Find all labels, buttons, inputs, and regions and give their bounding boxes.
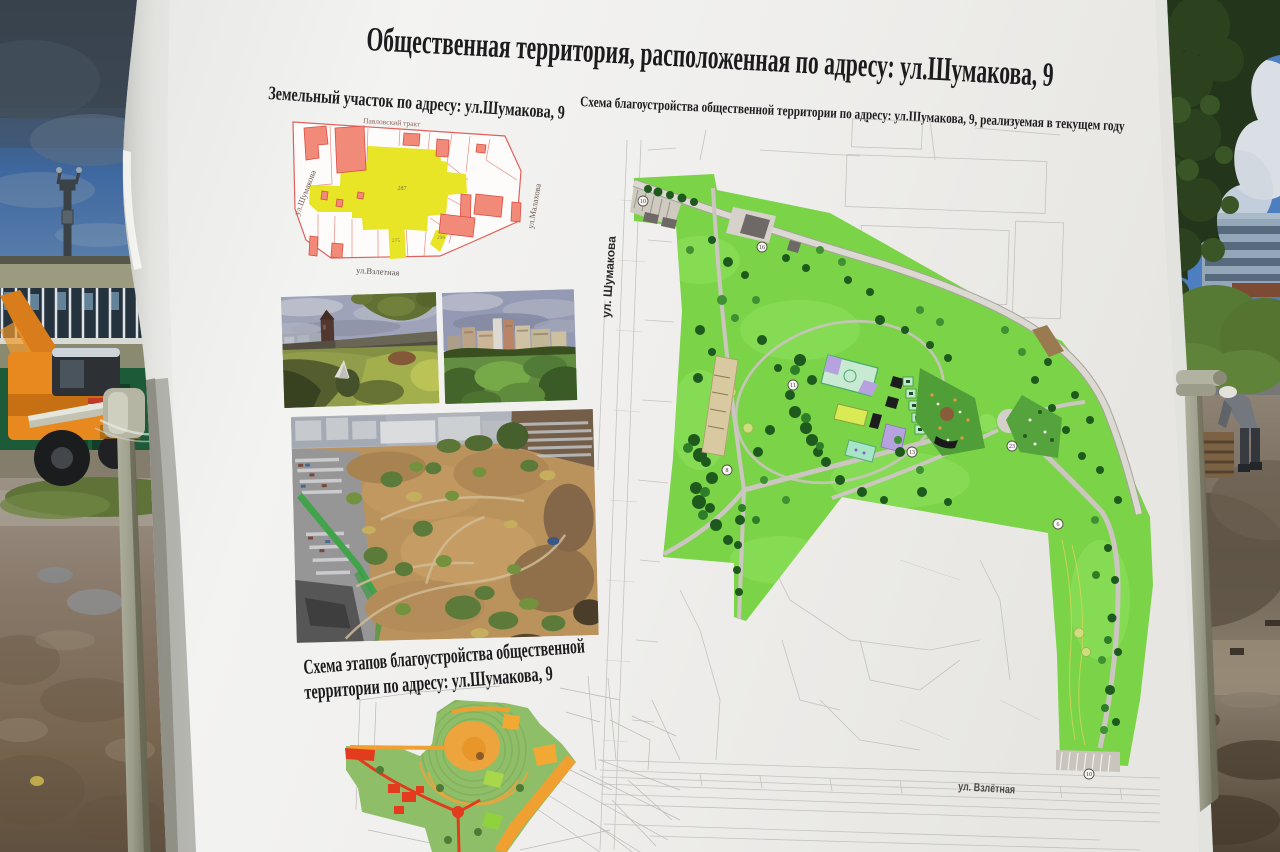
svg-text:296: 296	[437, 235, 446, 241]
svg-text:287: 287	[398, 186, 407, 192]
svg-text:6: 6	[1057, 522, 1060, 528]
svg-text:10: 10	[1086, 772, 1092, 778]
svg-text:13: 13	[909, 450, 915, 456]
svg-text:23: 23	[1009, 444, 1015, 450]
svg-text:275: 275	[392, 238, 401, 244]
svg-text:8: 8	[726, 468, 729, 474]
svg-text:16: 16	[759, 245, 765, 251]
svg-text:11: 11	[790, 383, 796, 389]
svg-text:10: 10	[640, 199, 646, 205]
